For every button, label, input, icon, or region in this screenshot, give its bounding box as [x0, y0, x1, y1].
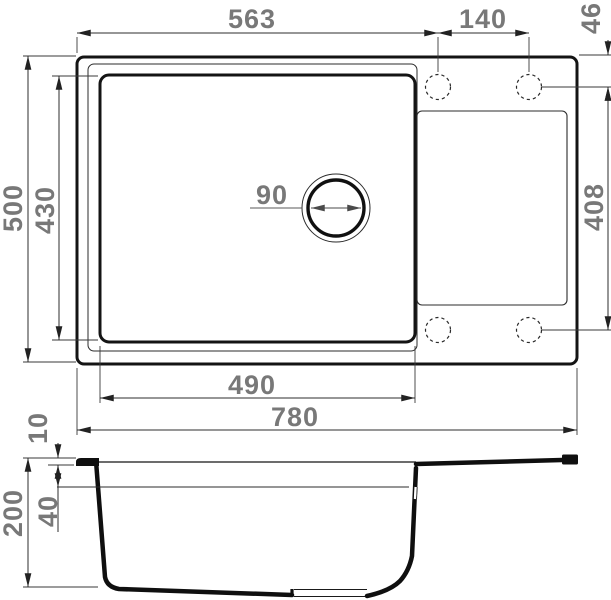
sink-technical-drawing: 90 563 140 46 408: [0, 0, 611, 600]
dim-rim-lip-height: 10: [23, 412, 76, 477]
section-bowl-left-wall: [96, 461, 292, 595]
dim-left-edge-to-tap: 563: [77, 4, 438, 72]
dim-408-label: 408: [579, 183, 609, 231]
tap-hole-top-left: [426, 75, 451, 100]
dim-490-label: 490: [228, 370, 276, 400]
drainboard-outline: [417, 111, 567, 305]
dim-430-label: 430: [30, 186, 60, 234]
tap-hole-bottom-left: [426, 318, 451, 343]
section-drainboard-end-edge: [562, 455, 578, 465]
top-view: 90 563 140 46 408: [0, 2, 611, 435]
tap-hole-top-right: [517, 75, 542, 100]
drawing-canvas: 90 563 140 46 408: [0, 0, 611, 600]
dim-780-label: 780: [271, 402, 319, 432]
dim-10-label: 10: [23, 412, 53, 444]
dim-200-label: 200: [0, 489, 28, 537]
dim-46-label: 46: [576, 2, 606, 34]
sink-outer-outline: [77, 57, 577, 364]
dim-overall-width: 780: [77, 368, 577, 435]
dim-563-label: 563: [228, 4, 276, 34]
dim-bowl-width: 490: [100, 346, 415, 403]
dim-40-label: 40: [33, 495, 63, 527]
dim-500-label: 500: [0, 184, 28, 232]
dim-tap-spacing: 140: [438, 4, 529, 72]
dim-140-label: 140: [459, 4, 507, 34]
dim-drain-diameter-label: 90: [256, 180, 288, 210]
dim-ledge-depth: 40: [33, 477, 63, 532]
section-drainboard-surface: [416, 460, 562, 464]
section-view: 10 40 200: [0, 412, 578, 597]
tap-hole-bottom-right: [517, 318, 542, 343]
section-wall-break: [415, 487, 416, 499]
